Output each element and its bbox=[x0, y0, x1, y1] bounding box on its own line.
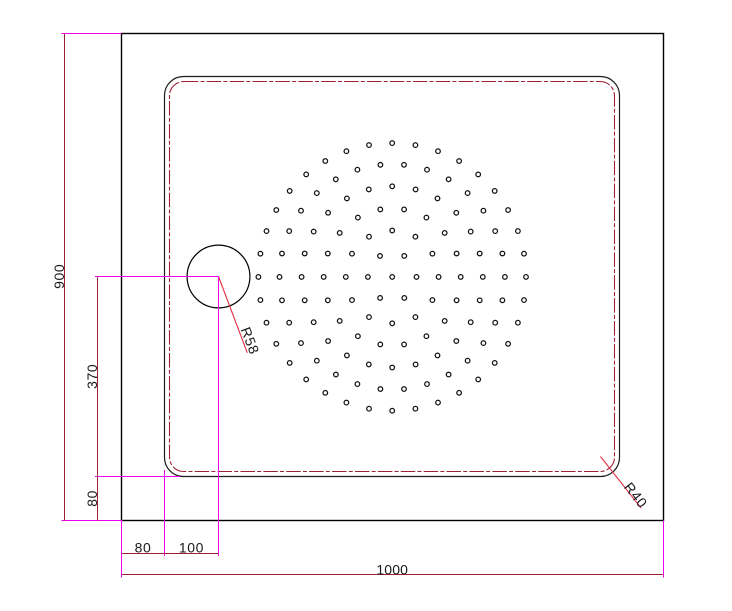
svg-text:100: 100 bbox=[179, 540, 204, 556]
svg-text:900: 900 bbox=[51, 264, 67, 289]
svg-text:1000: 1000 bbox=[376, 562, 408, 578]
svg-text:370: 370 bbox=[84, 364, 100, 389]
svg-text:80: 80 bbox=[135, 540, 152, 556]
svg-text:80: 80 bbox=[84, 490, 100, 507]
